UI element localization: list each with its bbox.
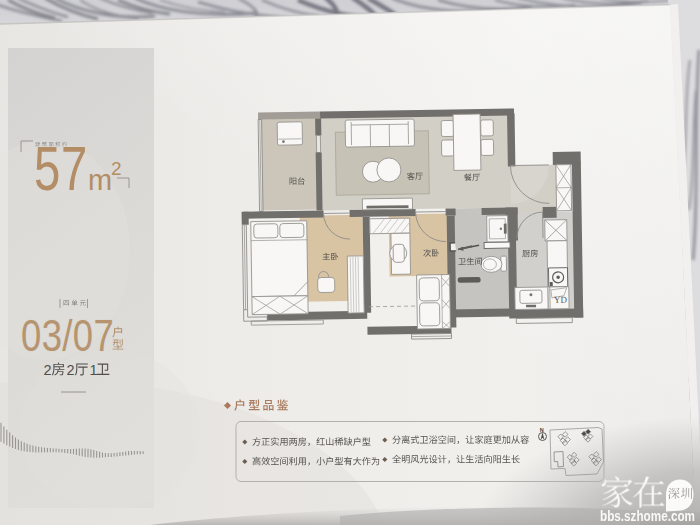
svg-text:57: 57 xyxy=(34,133,88,203)
svg-text:2: 2 xyxy=(111,158,122,179)
svg-text:2: 2 xyxy=(44,362,52,378)
svg-text:bbs.szhome.com: bbs.szhome.com xyxy=(600,508,695,524)
svg-text:1: 1 xyxy=(90,362,98,378)
svg-text:m: m xyxy=(88,164,112,196)
svg-text:N: N xyxy=(540,427,544,433)
svg-text:2: 2 xyxy=(67,362,75,378)
svg-text:03/07: 03/07 xyxy=(21,310,114,361)
svg-text:YD: YD xyxy=(554,295,568,305)
